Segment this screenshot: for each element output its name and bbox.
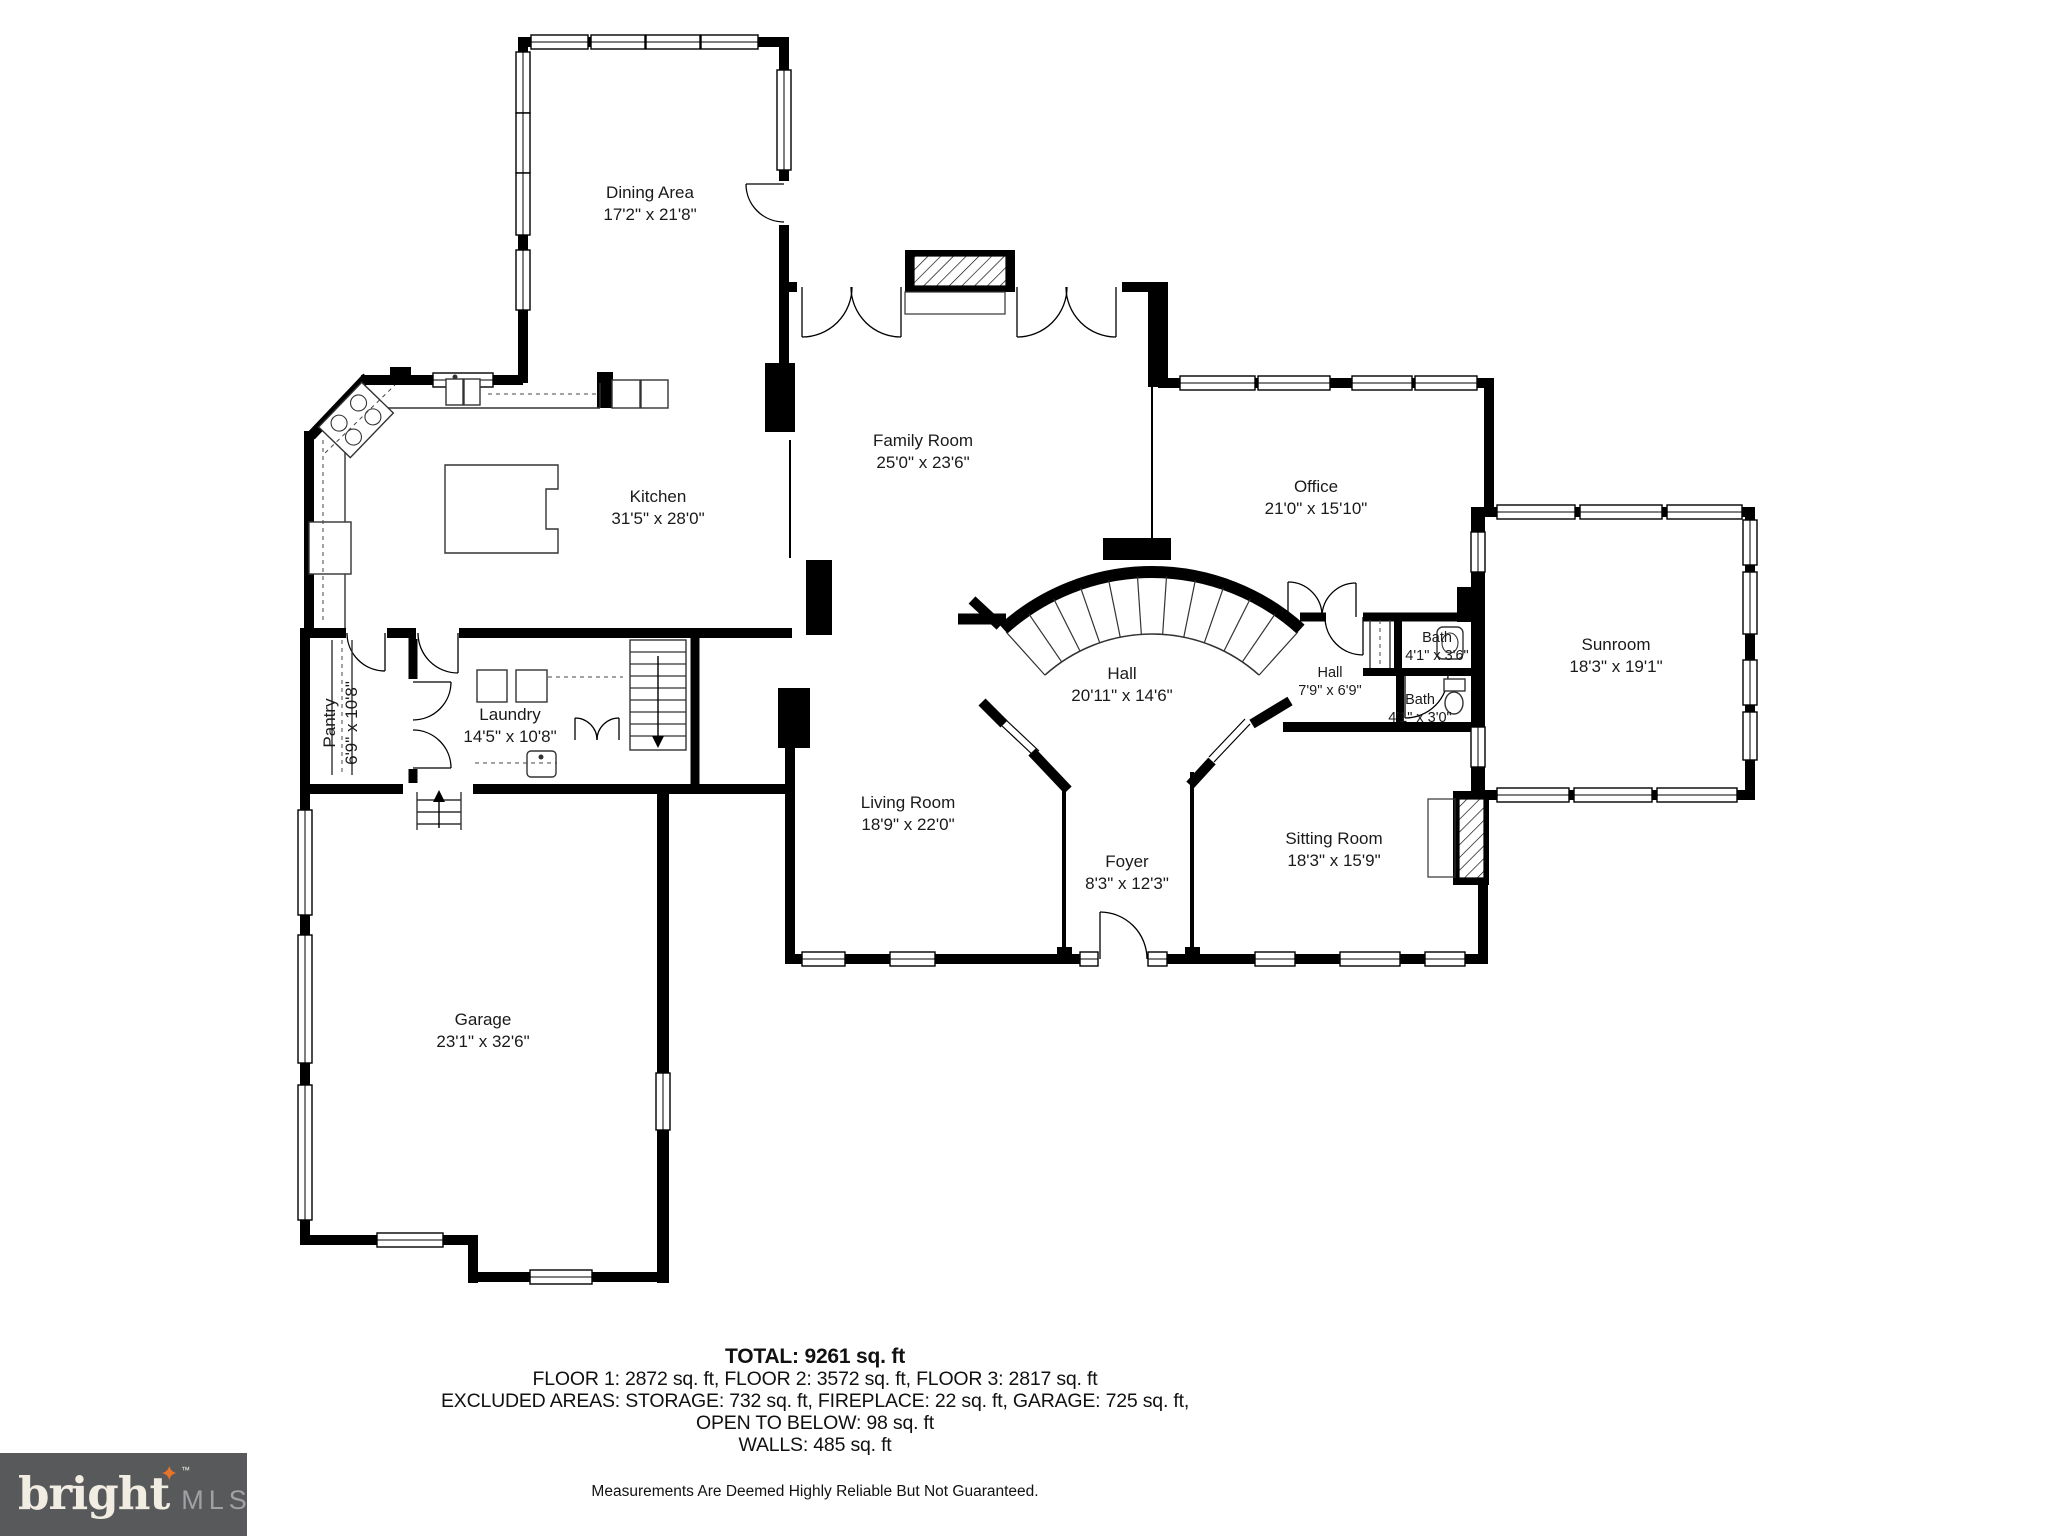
room-name: Bath (1405, 692, 1435, 708)
room-dims: 18'3" x 15'9" (1287, 851, 1380, 870)
room-name: Bath (1422, 630, 1452, 646)
logo-brand-text: bright (18, 1467, 169, 1520)
room-dims: 17'2" x 21'8" (603, 205, 696, 224)
trademark-icon: ™ (181, 1465, 190, 1475)
room-label-hall-small: Hall 7'9" x 6'9" (1298, 665, 1361, 699)
room-label-hall-main: Hall 20'11" x 14'6" (1071, 664, 1172, 705)
room-dims: 31'5" x 28'0" (611, 509, 704, 528)
room-label-kitchen: Kitchen 31'5" x 28'0" (611, 487, 704, 528)
room-name: Sitting Room (1285, 829, 1382, 848)
room-label-foyer: Foyer 8'3" x 12'3" (1085, 852, 1169, 893)
room-label-family-room: Family Room 25'0" x 23'6" (873, 431, 973, 472)
open-below-area: OPEN TO BELOW: 98 sq. ft (441, 1412, 1189, 1434)
room-name: Dining Area (606, 183, 694, 202)
windows-layer (298, 35, 1757, 1284)
room-dims: 6'9" x 10'8" (342, 681, 361, 765)
room-label-pantry: Pantry 6'9" x 10'8" (320, 681, 361, 765)
room-name: Garage (455, 1010, 512, 1029)
room-name: Hall (1107, 664, 1136, 683)
total-area: TOTAL: 9261 sq. ft (441, 1346, 1189, 1368)
excluded-area: EXCLUDED AREAS: STORAGE: 732 sq. ft, FIR… (441, 1390, 1189, 1412)
area-summary: TOTAL: 9261 sq. ft FLOOR 1: 2872 sq. ft,… (441, 1346, 1189, 1501)
room-label-office: Office 21'0" x 15'10" (1265, 477, 1368, 518)
floorplan-drawing: Dining Area 17'2" x 21'8" Family Room 25… (0, 0, 2048, 1536)
room-dims: 18'9" x 22'0" (861, 815, 954, 834)
room-name: Office (1294, 477, 1338, 496)
room-dims: 7'9" x 6'9" (1298, 683, 1361, 699)
room-dims: 14'5" x 10'8" (463, 727, 556, 746)
disclaimer-text: Measurements Are Deemed Highly Reliable … (441, 1483, 1189, 1501)
room-name: Laundry (479, 705, 541, 724)
room-name: Hall (1318, 665, 1343, 681)
bright-mls-logo: bright✦™MLS (0, 1453, 247, 1536)
room-label-garage: Garage 23'1" x 32'6" (436, 1010, 529, 1051)
room-dims: 4'1" x 3'0" (1388, 710, 1451, 726)
room-label-sitting-room: Sitting Room 18'3" x 15'9" (1285, 829, 1382, 870)
room-name: Kitchen (630, 487, 687, 506)
walls-area: WALLS: 485 sq. ft (441, 1434, 1189, 1456)
room-name: Foyer (1105, 852, 1149, 871)
room-name: Sunroom (1582, 635, 1651, 654)
room-dims: 23'1" x 32'6" (436, 1032, 529, 1051)
room-label-laundry: Laundry 14'5" x 10'8" (463, 705, 556, 746)
room-name: Living Room (861, 793, 956, 812)
logo-mls-text: MLS (181, 1485, 252, 1515)
room-dims: 21'0" x 15'10" (1265, 499, 1368, 518)
room-name: Pantry (320, 698, 339, 748)
room-name: Family Room (873, 431, 973, 450)
doors-layer (347, 184, 1448, 959)
room-dims: 18'3" x 19'1" (1569, 657, 1662, 676)
room-dims: 4'1" x 3'6" (1405, 648, 1468, 664)
room-dims: 25'0" x 23'6" (876, 453, 969, 472)
floorplan-page: Dining Area 17'2" x 21'8" Family Room 25… (0, 0, 2048, 1536)
room-label-sunroom: Sunroom 18'3" x 19'1" (1569, 635, 1662, 676)
sitting-room-fireplace (1428, 791, 1489, 885)
room-label-living-room: Living Room 18'9" x 22'0" (861, 793, 956, 834)
floors-area: FLOOR 1: 2872 sq. ft, FLOOR 2: 3572 sq. … (441, 1368, 1189, 1390)
room-dims: 8'3" x 12'3" (1085, 874, 1169, 893)
room-label-dining-area: Dining Area 17'2" x 21'8" (603, 183, 696, 224)
room-dims: 20'11" x 14'6" (1071, 686, 1172, 705)
star-icon: ✦ (160, 1461, 178, 1487)
door-openings-layer (346, 181, 1149, 966)
family-room-fireplace (905, 250, 1015, 314)
